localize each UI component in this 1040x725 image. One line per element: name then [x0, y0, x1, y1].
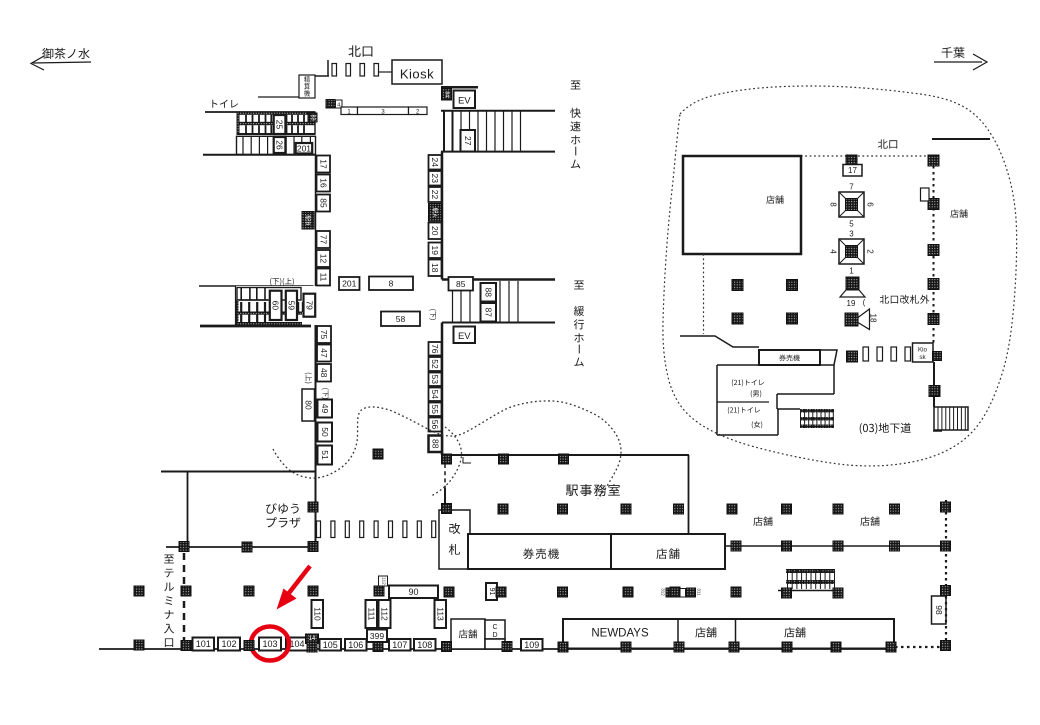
svg-text:24: 24 — [430, 158, 440, 168]
svg-text:108: 108 — [417, 640, 432, 650]
svg-text:23: 23 — [430, 174, 440, 184]
svg-text:算: 算 — [304, 82, 310, 91]
svg-text:EV: EV — [458, 331, 471, 342]
svg-text:77: 77 — [318, 235, 328, 245]
svg-text:26: 26 — [275, 140, 285, 150]
svg-text:80: 80 — [303, 400, 313, 410]
svg-text:C: C — [492, 624, 497, 631]
svg-text:85: 85 — [456, 279, 466, 289]
svg-text:76: 76 — [430, 344, 440, 354]
svg-text:47: 47 — [319, 348, 329, 358]
svg-text:311: 311 — [697, 588, 702, 596]
svg-text:59: 59 — [286, 301, 296, 311]
svg-text:20: 20 — [430, 226, 440, 236]
svg-text:102: 102 — [221, 639, 236, 649]
svg-text:8: 8 — [389, 278, 394, 288]
svg-text:22: 22 — [430, 190, 440, 200]
svg-text:11: 11 — [318, 273, 328, 282]
svg-text:113: 113 — [435, 607, 445, 621]
svg-text:60: 60 — [271, 301, 281, 311]
svg-text:399: 399 — [370, 631, 384, 641]
svg-text:103: 103 — [262, 639, 277, 649]
svg-text:49: 49 — [320, 404, 330, 414]
svg-text:50: 50 — [320, 427, 330, 437]
svg-text:111: 111 — [366, 608, 376, 621]
svg-text:112: 112 — [380, 607, 390, 621]
svg-text:110: 110 — [312, 607, 322, 621]
svg-text:18: 18 — [430, 263, 440, 273]
svg-text:18: 18 — [869, 314, 878, 323]
svg-text:91: 91 — [488, 588, 495, 596]
svg-text:88: 88 — [430, 439, 440, 449]
svg-text:8: 8 — [829, 202, 838, 207]
svg-text:56: 56 — [430, 420, 440, 430]
svg-text:201: 201 — [297, 143, 311, 153]
svg-text:16: 16 — [318, 178, 328, 188]
svg-text:6: 6 — [866, 202, 875, 207]
svg-text:53: 53 — [430, 375, 440, 385]
svg-text:107: 107 — [392, 640, 407, 650]
svg-text:12: 12 — [318, 254, 328, 264]
svg-text:19: 19 — [847, 299, 856, 308]
svg-text:105: 105 — [323, 640, 338, 650]
svg-text:sk: sk — [919, 354, 926, 361]
svg-text:27: 27 — [463, 136, 473, 146]
svg-text:精: 精 — [304, 75, 311, 84]
svg-text:51: 51 — [320, 450, 330, 460]
svg-text:17: 17 — [848, 166, 857, 175]
svg-text:14: 14 — [309, 636, 316, 642]
svg-text:1: 1 — [849, 267, 854, 276]
svg-text:112: 112 — [381, 577, 387, 585]
svg-text:19: 19 — [430, 246, 440, 256]
svg-text:(: ( — [863, 298, 866, 307]
svg-text:90: 90 — [408, 587, 418, 597]
svg-text:7: 7 — [849, 183, 854, 192]
svg-text:88: 88 — [483, 288, 493, 298]
svg-text:312: 312 — [661, 588, 666, 596]
svg-text:3: 3 — [849, 230, 854, 239]
svg-text:機: 機 — [304, 89, 311, 98]
svg-text:55: 55 — [430, 405, 440, 415]
svg-text:D: D — [492, 632, 497, 639]
svg-text:4: 4 — [829, 249, 838, 254]
svg-text:75: 75 — [319, 330, 329, 340]
svg-text:Kio: Kio — [918, 347, 928, 354]
svg-text:2: 2 — [866, 249, 875, 254]
svg-text:101: 101 — [196, 639, 211, 649]
svg-text:201: 201 — [342, 279, 356, 289]
svg-text:25: 25 — [275, 120, 285, 130]
svg-text:52: 52 — [430, 359, 440, 369]
svg-text:5: 5 — [849, 220, 854, 229]
svg-text:58: 58 — [396, 314, 406, 324]
svg-text:85: 85 — [318, 198, 328, 208]
svg-text:EV: EV — [458, 96, 471, 107]
svg-text:83: 83 — [310, 114, 316, 120]
svg-text:106: 106 — [348, 640, 363, 650]
svg-text:79: 79 — [304, 300, 314, 310]
svg-text:54: 54 — [430, 390, 440, 400]
svg-text:104: 104 — [289, 639, 304, 649]
svg-text:17: 17 — [318, 159, 328, 169]
svg-text:98: 98 — [934, 605, 944, 615]
svg-text:48: 48 — [319, 368, 329, 378]
svg-text:109: 109 — [524, 640, 539, 650]
svg-text:84: 84 — [444, 91, 450, 97]
svg-text:NEWDAYS: NEWDAYS — [591, 628, 649, 640]
svg-text:4: 4 — [337, 102, 340, 108]
svg-text:87: 87 — [483, 308, 493, 318]
svg-text:Kiosk: Kiosk — [400, 67, 434, 82]
